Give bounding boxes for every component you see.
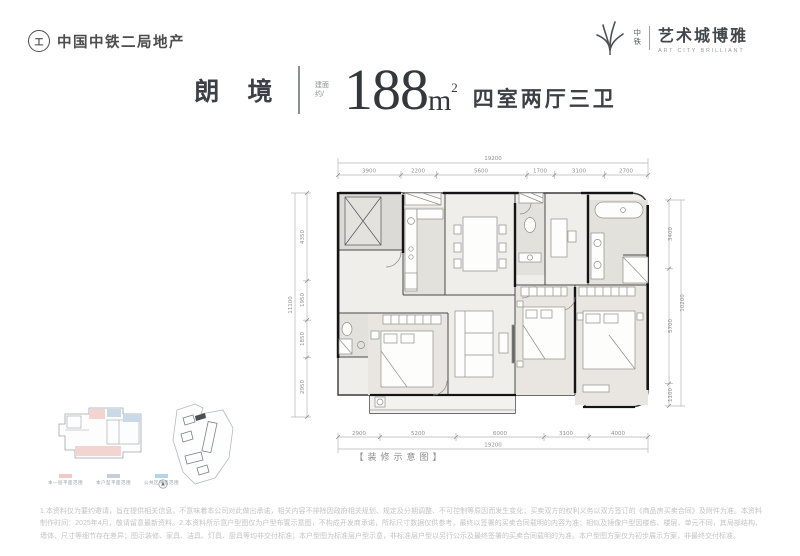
svg-text:19200: 19200 [484, 156, 502, 162]
legend-swatch [59, 474, 72, 478]
project-logo-prefix: 中铁 [633, 29, 641, 46]
svg-text:1950: 1950 [300, 293, 306, 307]
svg-text:2950: 2950 [300, 380, 306, 394]
svg-text:5200: 5200 [411, 431, 425, 437]
leaf-fan-icon [595, 20, 625, 56]
svg-text:2200: 2200 [411, 169, 425, 175]
svg-text:5700: 5700 [668, 319, 674, 333]
developer-name: 中国中铁二局地产 [57, 31, 185, 52]
logo-divider [649, 26, 650, 50]
site-plan [173, 404, 233, 484]
svg-text:1100: 1100 [668, 388, 674, 402]
svg-text:1850: 1850 [300, 332, 306, 346]
svg-text:2900: 2900 [352, 431, 366, 437]
svg-text:3100: 3100 [559, 431, 573, 437]
unit-title: 朗 境 建面约/ 188 m 2 四室两厅三卫 [0, 64, 800, 116]
project-name: 艺术城博雅 [658, 22, 748, 46]
svg-text:4350: 4350 [300, 230, 306, 244]
key-plan [59, 408, 141, 458]
legend-item: 本户型平面范围 [96, 474, 131, 486]
svg-text:19200: 19200 [484, 443, 502, 449]
developer-logo: 工 中国中铁二局地产 [28, 30, 185, 52]
svg-text:4000: 4000 [611, 431, 625, 437]
plan-body [337, 192, 649, 413]
project-logo: 中铁 艺术城博雅 ART CITY BRILLIANT [595, 20, 748, 56]
area-prefix: 建面约/ [315, 81, 329, 99]
svg-text:3400: 3400 [668, 227, 674, 241]
legend-swatch [155, 474, 168, 478]
area-value: 188 m 2 [344, 64, 458, 116]
svg-text:3100: 3100 [572, 169, 586, 175]
svg-text:5600: 5600 [474, 169, 488, 175]
legend-swatch [107, 474, 120, 478]
project-name-en: ART CITY BRILLIANT [658, 48, 745, 54]
legend-item: 公共区平面范围 [144, 474, 179, 486]
svg-text:11100: 11100 [288, 296, 294, 314]
railway-emblem-icon: 工 [28, 30, 50, 52]
svg-text:1700: 1700 [533, 169, 547, 175]
unit-name: 朗 境 [183, 72, 283, 108]
title-divider [298, 66, 300, 114]
bath2-floor [515, 203, 545, 275]
svg-text:10200: 10200 [680, 294, 686, 312]
legend: 本一层平面范围 本户型平面范围 公共区平面范围 [48, 474, 179, 486]
room-layout-label: 四室两厅三卫 [473, 83, 617, 113]
svg-text:2700: 2700 [619, 169, 633, 175]
legend-item: 本一层平面范围 [48, 474, 83, 486]
svg-text:6000: 6000 [493, 431, 507, 437]
floorplan-svg: 19200 3900 2200 5600 1700 3100 2700 2900… [283, 145, 707, 463]
svg-text:3900: 3900 [362, 169, 376, 175]
disclaimer-text: 1.本资料仅为要约邀请，旨在提供相关信息，不意味着本公司对此做出承诺，相关内容不… [40, 506, 762, 543]
